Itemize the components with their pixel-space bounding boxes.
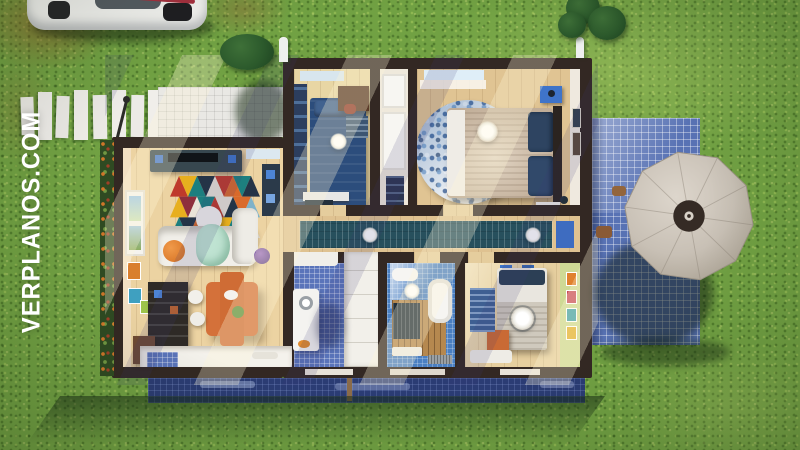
west-window-view xyxy=(129,226,141,250)
partition-wall xyxy=(408,69,417,216)
stepping-stone xyxy=(131,95,145,137)
fruit-bowl xyxy=(298,340,310,348)
hallway-ceiling-light xyxy=(362,227,378,243)
tree-shadow xyxy=(235,80,290,142)
bush xyxy=(220,34,274,70)
counter-dishes xyxy=(252,352,278,359)
patio-chair xyxy=(596,226,612,238)
kitchen-tall-cabinet xyxy=(344,252,378,367)
master-bed-pillows xyxy=(528,112,554,152)
master-lamp-north xyxy=(548,90,555,97)
master-north-window xyxy=(424,70,484,80)
dining-wall-art xyxy=(127,262,141,280)
bush xyxy=(588,6,626,40)
stepping-stone xyxy=(55,96,69,138)
plant-pot xyxy=(254,248,270,264)
entry-door-panel xyxy=(382,74,406,108)
fridge-dial xyxy=(299,296,313,310)
bedroom2-striped-rug xyxy=(470,288,495,332)
master-wall-frames xyxy=(572,108,581,128)
bathroom-ceiling-light xyxy=(404,283,420,299)
car-rear-window xyxy=(95,0,161,9)
bedroom1-desk-chair xyxy=(344,104,356,114)
partition-wall xyxy=(455,263,465,367)
dry-grass-patch xyxy=(198,0,288,37)
bedroom2-wall-art xyxy=(566,326,577,340)
flower-planter xyxy=(100,140,114,376)
terrace-reflection xyxy=(540,381,574,388)
master-bed-sheet xyxy=(447,110,465,196)
partition-wall xyxy=(378,263,387,367)
bedroom1-ceiling-light xyxy=(330,133,347,150)
stepping-stone xyxy=(74,90,88,140)
stepping-stone xyxy=(93,95,108,139)
dining-chair xyxy=(190,312,205,326)
bedroom1-window xyxy=(300,71,344,81)
floor-plan-render: VERPLANOS.COM xyxy=(0,0,800,450)
vent-pipe xyxy=(279,37,288,62)
terrace-reflection xyxy=(200,381,255,388)
bathroom-sink xyxy=(392,268,418,281)
bedroom2-wall-art xyxy=(566,290,577,304)
vent-pipe xyxy=(576,37,584,58)
entry-door-panel xyxy=(382,112,406,170)
doorway xyxy=(414,252,440,263)
umbrella xyxy=(615,142,763,290)
car-wheel xyxy=(163,3,192,21)
bedroom2-dresser xyxy=(487,330,509,350)
west-window-view xyxy=(129,196,141,221)
doorway xyxy=(320,205,346,216)
orange-pouf xyxy=(163,240,185,262)
dining-plate xyxy=(224,290,238,300)
bathtub xyxy=(428,279,452,323)
house-cast-shadow xyxy=(26,396,605,444)
bedroom1-dresser xyxy=(346,116,368,138)
bedroom2-wall-art xyxy=(566,272,577,286)
north-window-living xyxy=(246,149,280,159)
watermark-text: VERPLANOS.COM xyxy=(18,111,47,333)
console-decor xyxy=(228,155,236,163)
shelf-decor xyxy=(266,194,275,203)
hallway-door-mat xyxy=(556,221,574,248)
counter-sink-tiles xyxy=(147,352,178,367)
south-window xyxy=(305,369,353,375)
living-west-wall-face xyxy=(123,148,131,367)
dining-plant xyxy=(232,306,244,318)
hallway-ceiling-light xyxy=(525,227,541,243)
bedroom2-pillows xyxy=(499,270,545,285)
hallway-runner xyxy=(300,221,552,248)
throw-blanket xyxy=(196,224,230,266)
south-window xyxy=(500,369,540,375)
doorway xyxy=(443,205,473,216)
master-floor-lamp xyxy=(560,196,568,204)
master-curtain xyxy=(420,80,486,89)
bedroom2-wall-art xyxy=(566,308,577,322)
car-wheel xyxy=(48,1,70,19)
doorway xyxy=(468,252,494,263)
tv-screen xyxy=(168,153,218,162)
partition-wall xyxy=(370,69,380,216)
bedroom2-white-mat xyxy=(470,350,512,363)
kitchen-floor-shadow xyxy=(316,303,344,349)
kitchen-counter-top xyxy=(294,252,338,266)
master-bed-pillows xyxy=(528,156,554,196)
bathroom-radiator xyxy=(393,303,420,339)
master-wall-frames xyxy=(572,132,581,156)
bookshelf-books xyxy=(170,306,178,314)
bush xyxy=(558,12,586,38)
dining-chair xyxy=(188,290,203,304)
south-window xyxy=(390,369,445,375)
master-ceiling-fan xyxy=(477,121,498,142)
shelf-decor xyxy=(266,170,275,179)
bathroom-drain-grate xyxy=(428,355,452,364)
garden-lamp-head xyxy=(123,96,130,103)
bathroom-mat xyxy=(392,347,422,356)
console-decor xyxy=(155,155,163,163)
bookshelf-books xyxy=(154,290,162,298)
bedroom2-ceiling-fan xyxy=(511,307,534,330)
master-headboard xyxy=(553,106,562,202)
